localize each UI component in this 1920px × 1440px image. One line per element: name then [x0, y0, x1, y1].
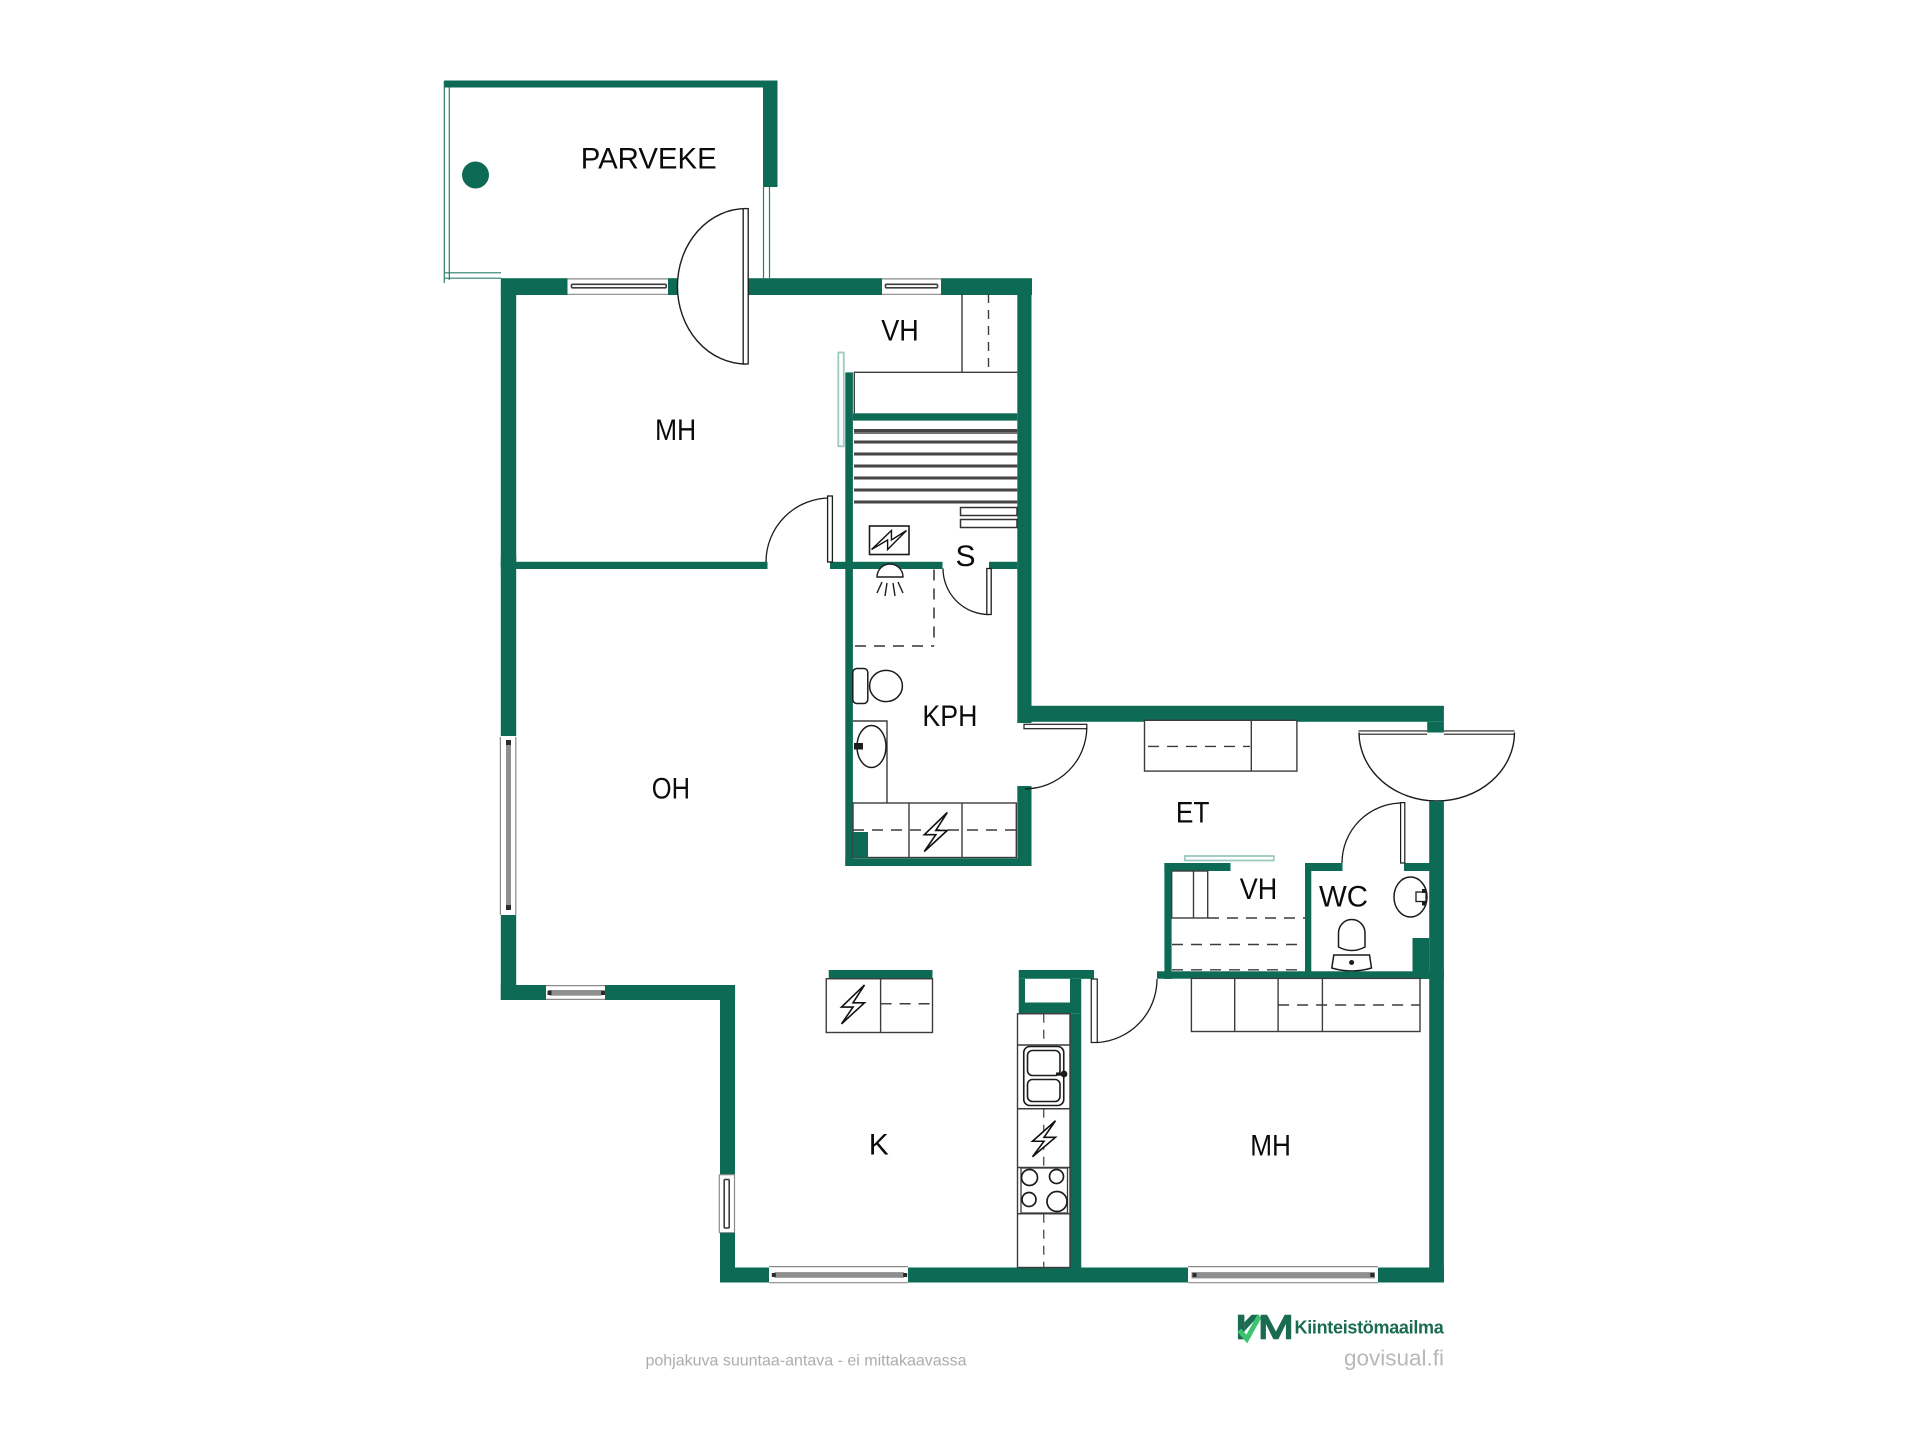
svg-text:VH: VH: [881, 315, 919, 348]
svg-text:pohjakuva suuntaa-antava - ei: pohjakuva suuntaa-antava - ei mittakaava…: [645, 1353, 966, 1370]
svg-text:Kiinteistömaailma: Kiinteistömaailma: [1295, 1318, 1445, 1338]
svg-text:ET: ET: [1176, 797, 1210, 830]
svg-text:MH: MH: [1250, 1130, 1291, 1163]
svg-text:K: K: [869, 1129, 889, 1162]
svg-text:WC: WC: [1319, 881, 1368, 914]
svg-text:VH: VH: [1240, 873, 1278, 906]
svg-text:KPH: KPH: [922, 700, 977, 733]
svg-text:govisual.fi: govisual.fi: [1344, 1346, 1444, 1371]
svg-text:PARVEKE: PARVEKE: [581, 142, 717, 175]
svg-text:S: S: [955, 540, 975, 573]
svg-text:OH: OH: [652, 773, 690, 806]
svg-text:MH: MH: [655, 414, 696, 447]
